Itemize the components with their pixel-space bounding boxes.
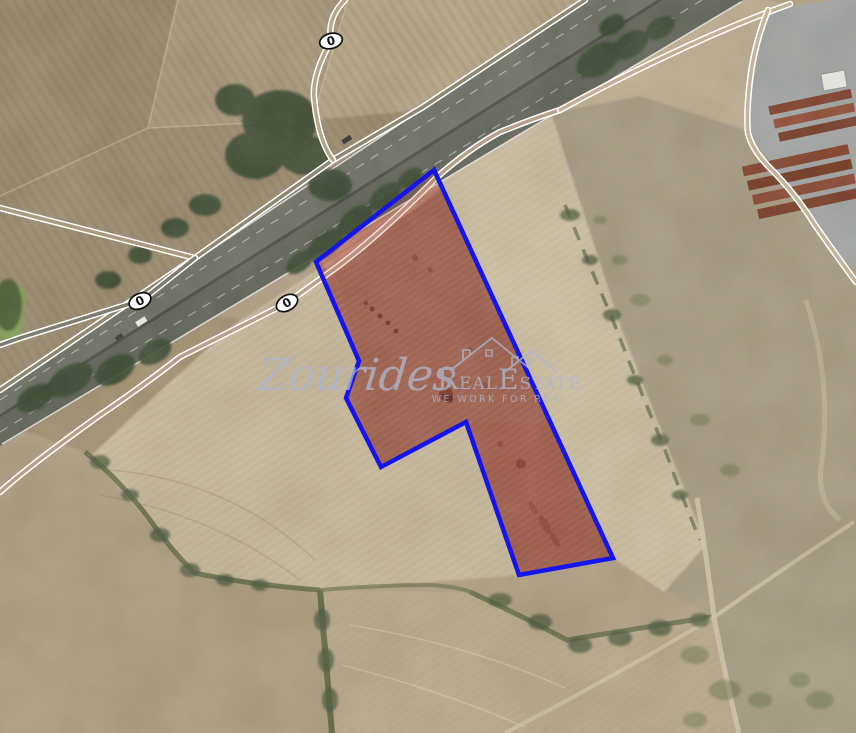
watermark-brand-script: Zourides [254, 350, 459, 401]
satellite-basemap: 0 0 0 Zourides REALESTATE WE WORK FOR RE… [0, 0, 856, 733]
watermark-letters-eal: EAL [459, 374, 498, 394]
aerial-map-image: 0 0 0 Zourides REALESTATE WE WORK FOR RE… [0, 0, 856, 733]
watermark-letters-state: STATE [520, 374, 582, 394]
watermark-tagline: WE WORK FOR REAL [432, 394, 569, 405]
watermark-letter-r: R [437, 363, 459, 396]
watermark-letter-e: E [498, 363, 519, 396]
